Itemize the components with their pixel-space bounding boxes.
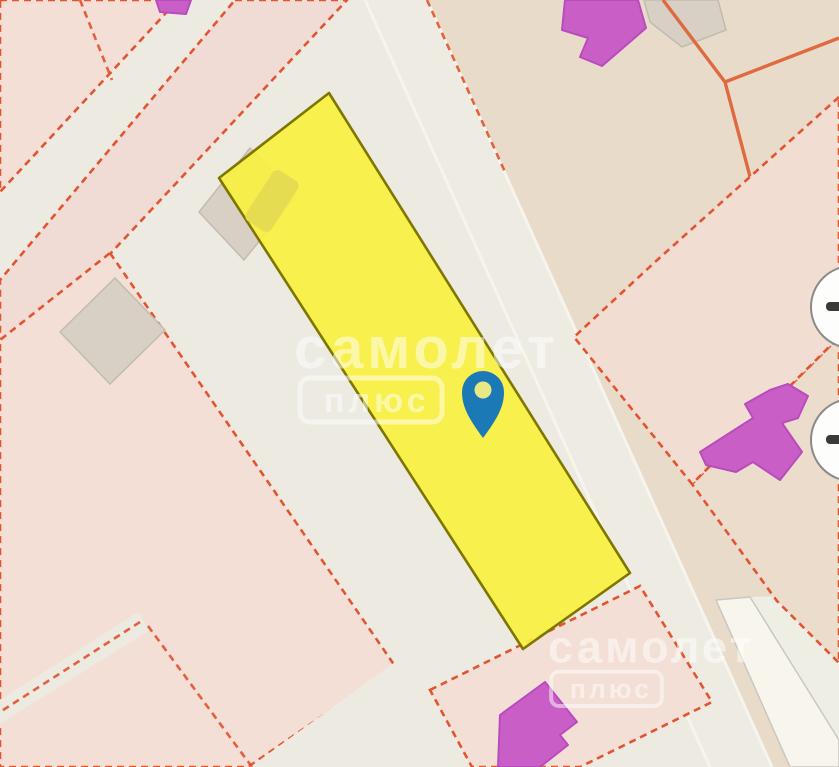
location-pin-hole — [475, 382, 492, 399]
dash-icon — [826, 302, 839, 311]
building-magenta-top-left — [156, 0, 191, 14]
watermark-badge-text: плюс — [324, 382, 430, 420]
watermark-badge-text: плюс — [570, 674, 652, 704]
map-stage: самолет плюс самолет плюс — [0, 0, 839, 767]
watermark-brand-text: самолет — [294, 316, 559, 381]
watermark-brand-text: самолет — [548, 621, 755, 672]
dash-icon — [826, 435, 839, 444]
map-canvas[interactable]: самолет плюс самолет плюс — [0, 0, 839, 767]
